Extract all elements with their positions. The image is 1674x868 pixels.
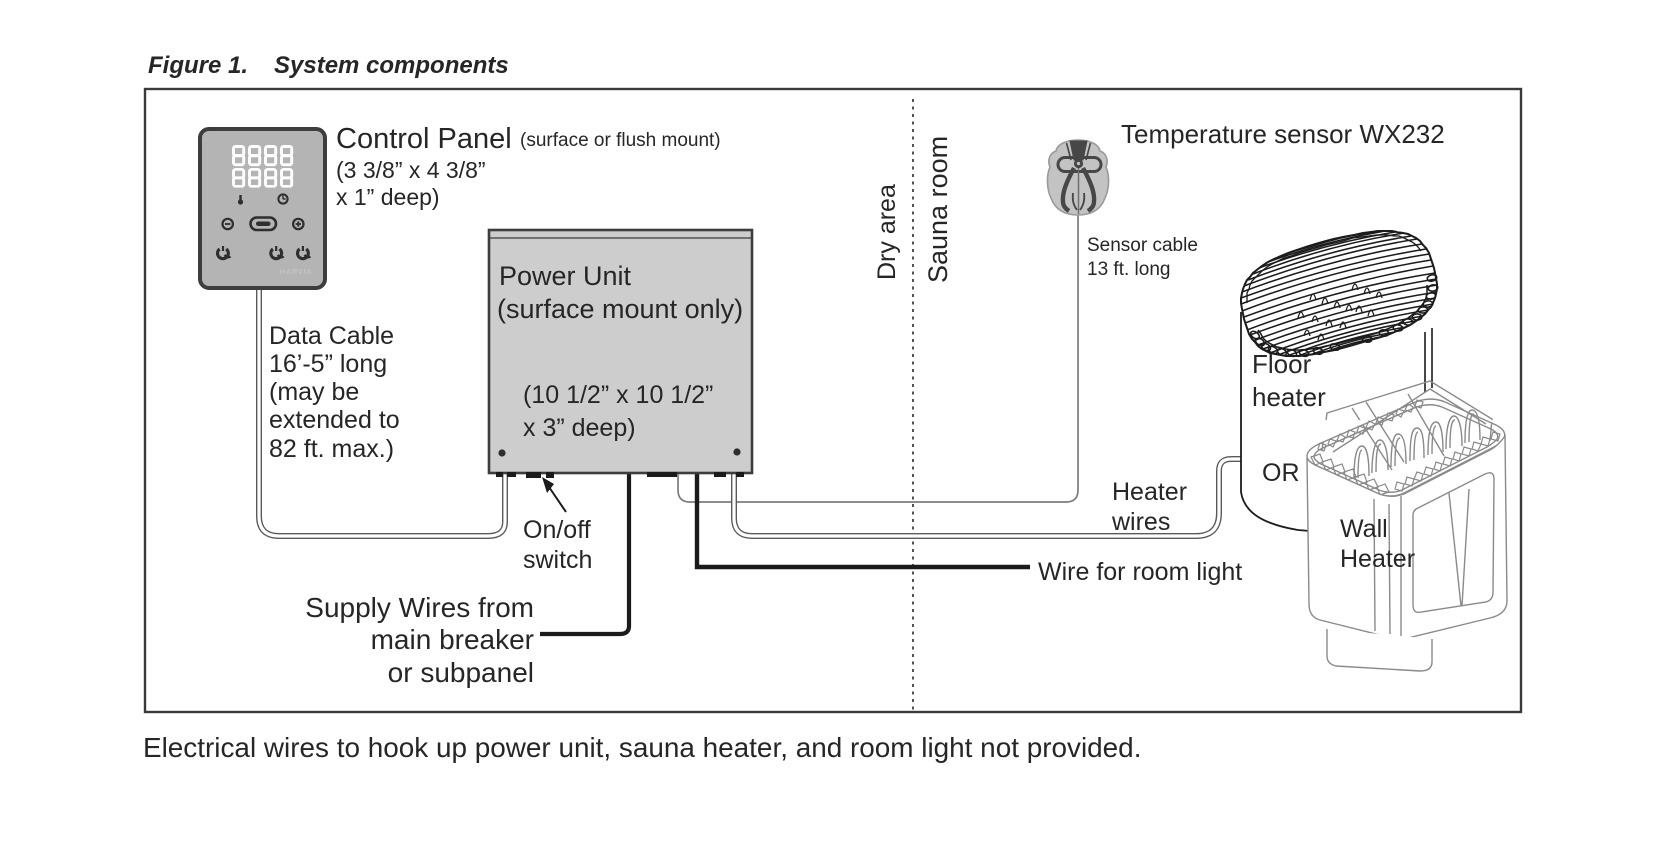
svg-text:Figure 1.: Figure 1. [148, 52, 248, 79]
svg-text:heater: heater [1252, 382, 1326, 412]
svg-text:System components: System components [274, 52, 509, 79]
svg-text:x 1” deep): x 1” deep) [336, 184, 440, 210]
svg-text:(may be: (may be [269, 378, 359, 406]
svg-text:(surface mount only): (surface mount only) [497, 294, 743, 324]
svg-text:On/off: On/off [523, 516, 591, 544]
svg-text:Wall: Wall [1340, 515, 1388, 543]
svg-text:(10 1/2” x 10 1/2”: (10 1/2” x 10 1/2” [523, 381, 713, 409]
svg-text:switch: switch [523, 546, 592, 574]
svg-text:Dry area: Dry area [873, 184, 901, 280]
svg-text:Sauna room: Sauna room [923, 136, 953, 283]
svg-text:x 3” deep): x 3” deep) [523, 414, 636, 442]
svg-text:Heater: Heater [1340, 545, 1415, 573]
svg-text:wires: wires [1111, 508, 1170, 536]
svg-text:82 ft. max.): 82 ft. max.) [269, 435, 394, 463]
svg-text:Electrical wires to hook up po: Electrical wires to hook up power unit, … [143, 732, 1141, 763]
svg-text:Control Panel: Control Panel [336, 123, 512, 155]
svg-text:Temperature sensor WX232: Temperature sensor WX232 [1121, 119, 1445, 149]
svg-text:Sensor cable: Sensor cable [1087, 235, 1198, 256]
svg-text:Power Unit: Power Unit [499, 261, 632, 291]
svg-text:Wire for room light: Wire for room light [1038, 558, 1242, 586]
svg-text:Heater: Heater [1112, 478, 1187, 506]
svg-text:extended to: extended to [269, 406, 400, 434]
svg-text:Supply Wires from: Supply Wires from [305, 592, 534, 623]
svg-text:13 ft. long: 13 ft. long [1087, 259, 1170, 280]
svg-text:(surface or flush mount): (surface or flush mount) [520, 130, 721, 151]
svg-text:OR: OR [1262, 459, 1300, 487]
svg-text:Floor: Floor [1252, 349, 1312, 379]
svg-text:16’-5” long: 16’-5” long [269, 350, 387, 378]
svg-text:or subpanel: or subpanel [388, 657, 534, 688]
svg-text:HARVIA: HARVIA [280, 267, 312, 276]
svg-text:(3 3/8” x 4 3/8”: (3 3/8” x 4 3/8” [336, 157, 486, 183]
svg-text:Data Cable: Data Cable [269, 322, 394, 350]
svg-text:main breaker: main breaker [371, 624, 534, 655]
